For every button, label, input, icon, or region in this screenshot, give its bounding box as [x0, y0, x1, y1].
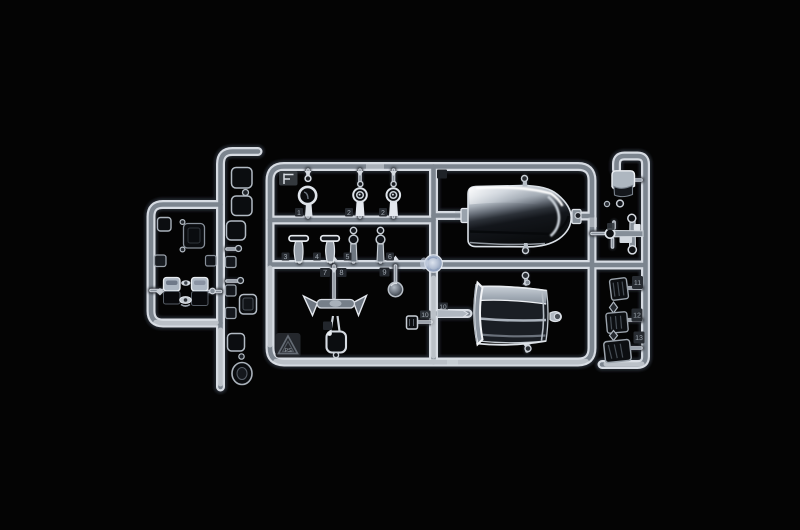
svg-text:4: 4 — [315, 254, 319, 261]
svg-text:13: 13 — [635, 335, 643, 342]
svg-text:9: 9 — [382, 268, 386, 277]
svg-text:10: 10 — [421, 312, 429, 319]
svg-text:1: 1 — [297, 210, 301, 217]
svg-text:2: 2 — [347, 210, 351, 217]
svg-text:6: 6 — [388, 254, 392, 261]
svg-text:5: 5 — [346, 254, 350, 261]
svg-text:7: 7 — [323, 268, 327, 277]
svg-text:12: 12 — [633, 313, 641, 320]
svg-text:8: 8 — [339, 268, 343, 277]
svg-text:11: 11 — [634, 280, 641, 287]
svg-text:2: 2 — [381, 210, 385, 217]
svg-text:PS: PS — [285, 348, 293, 354]
svg-text:3: 3 — [284, 254, 288, 261]
